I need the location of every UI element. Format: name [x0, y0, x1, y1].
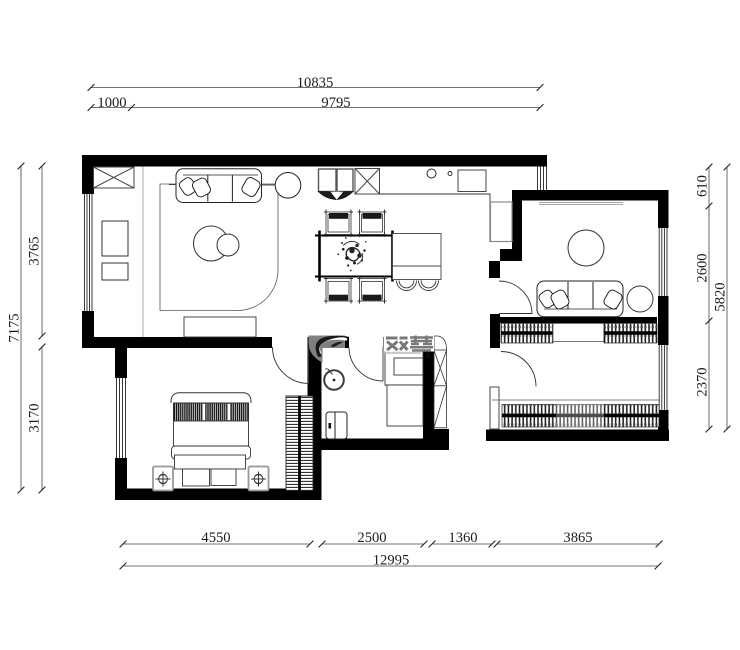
svg-text:2370: 2370 [694, 367, 710, 396]
svg-text:3765: 3765 [26, 236, 42, 265]
svg-text:5820: 5820 [712, 282, 728, 311]
svg-text:R: R [426, 350, 432, 360]
svg-text:3865: 3865 [563, 530, 592, 546]
svg-text:9795: 9795 [321, 95, 350, 111]
svg-text:2600: 2600 [694, 253, 710, 282]
svg-text:10835: 10835 [297, 75, 333, 91]
svg-text:1000: 1000 [97, 95, 126, 111]
svg-text:2500: 2500 [357, 530, 386, 546]
svg-text:610: 610 [694, 175, 710, 197]
svg-text:7175: 7175 [6, 313, 22, 342]
svg-text:3170: 3170 [26, 403, 42, 432]
svg-text:12995: 12995 [373, 553, 409, 569]
svg-text:4550: 4550 [201, 530, 230, 546]
svg-text:1360: 1360 [448, 530, 477, 546]
